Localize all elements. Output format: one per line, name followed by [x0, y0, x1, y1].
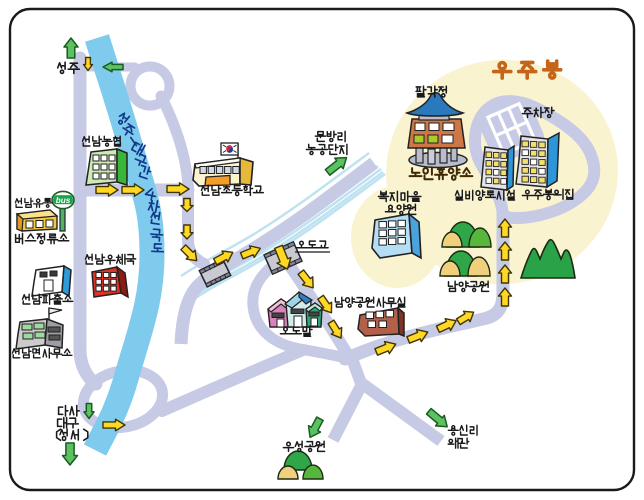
svg-text:bus: bus [56, 196, 71, 205]
